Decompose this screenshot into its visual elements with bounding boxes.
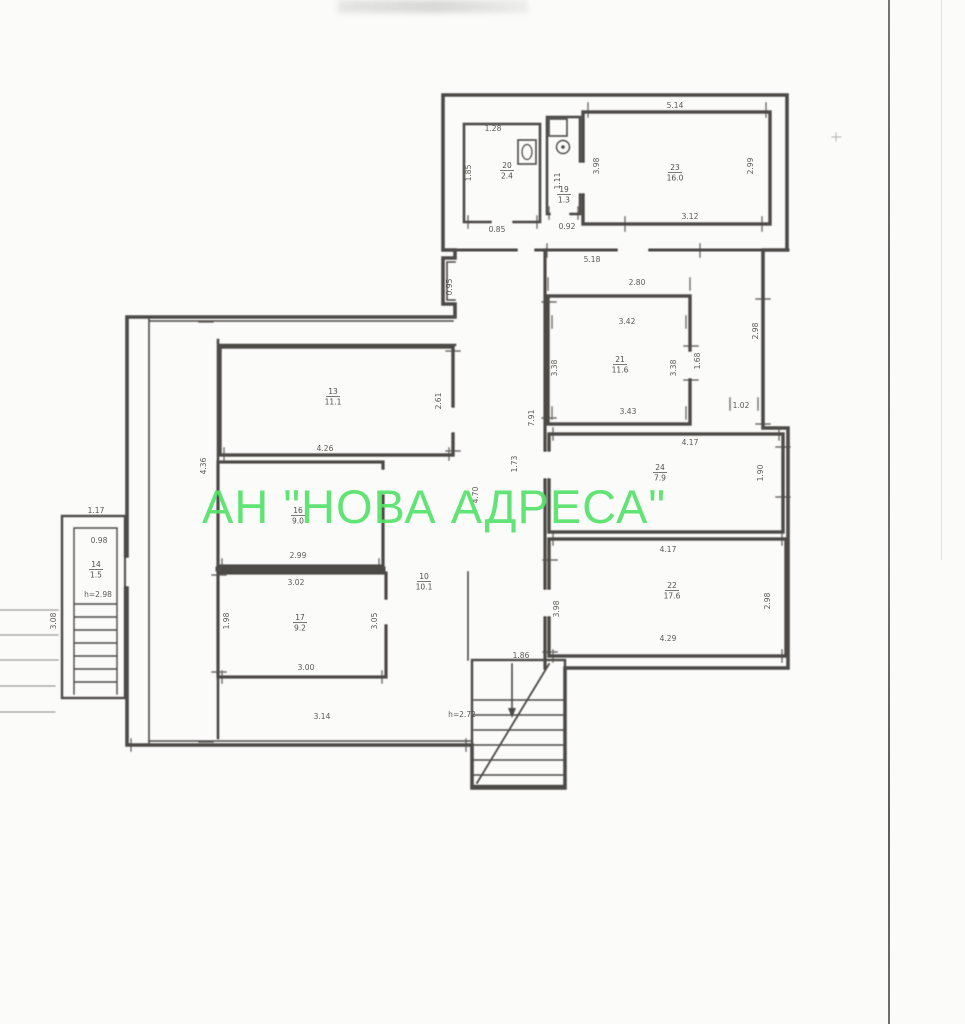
door-openings <box>121 163 696 624</box>
room-area-label: 1.5 <box>90 571 102 580</box>
dimension-label: 3.38 <box>550 359 559 376</box>
room-number-label: 22 <box>667 581 677 590</box>
dimension-ticks <box>131 103 790 751</box>
dimension-label: h=2.72 <box>448 710 476 719</box>
dimension-label: 4.29 <box>660 634 677 643</box>
dimension-label: 5.18 <box>584 255 601 264</box>
room-area-label: 10.1 <box>416 583 433 592</box>
scan-line-main <box>888 0 890 1024</box>
dimension-label: 3.05 <box>370 612 379 629</box>
room-number-label: 23 <box>670 163 680 172</box>
staircase-bottom <box>472 660 565 786</box>
scan-line-faint <box>941 0 942 560</box>
dimension-label: 3.14 <box>314 712 331 721</box>
dimension-label: 0.85 <box>489 225 506 234</box>
dimension-label: 1.86 <box>513 651 530 660</box>
dimension-label: 3.43 <box>620 407 637 416</box>
room-area-label: 9.2 <box>294 624 306 633</box>
dimension-label: 1.90 <box>756 464 765 481</box>
room-number-label: 24 <box>655 463 665 472</box>
dimension-label: 2.80 <box>629 278 646 287</box>
scan-mark <box>832 133 841 141</box>
room-area-label: 17.6 <box>664 592 681 601</box>
dimension-label: 3.08 <box>49 612 58 629</box>
room-area-label: 11.6 <box>612 366 629 375</box>
scan-smudge-top <box>338 0 528 13</box>
dimension-label: 3.02 <box>288 578 305 587</box>
dimension-label: h=2.98 <box>84 590 112 599</box>
dimension-label: 0.98 <box>91 536 108 545</box>
floor-plan-page: 1.281.850.850.921.115.143.982.993.125.18… <box>0 0 965 1024</box>
dimension-label: 1.73 <box>510 455 519 472</box>
dimension-label: 3.98 <box>592 157 601 174</box>
labels-group: 1.281.850.850.921.115.143.982.993.125.18… <box>49 101 772 721</box>
room-area-label: 2.4 <box>501 172 513 181</box>
room-number-label: 21 <box>615 355 625 364</box>
dimension-label: 2.98 <box>763 592 772 609</box>
dimension-label: 7.91 <box>527 409 536 426</box>
room-number-label: 19 <box>559 185 569 194</box>
staircase-left <box>0 516 125 712</box>
dimension-label: 0.92 <box>559 222 576 231</box>
watermark: АН "НОВА АДРЕСА" <box>202 479 666 534</box>
room-number-label: 13 <box>328 387 338 396</box>
toilet-icon <box>549 119 570 154</box>
dimension-label: 1.02 <box>733 401 750 410</box>
dimension-label: 0.95 <box>445 278 454 295</box>
dimension-label: 3.98 <box>552 600 561 617</box>
dimension-label: 1.85 <box>464 164 473 181</box>
room-area-label: 1.3 <box>558 196 570 205</box>
dimension-label: 1.17 <box>88 506 105 515</box>
dimension-label: 2.99 <box>290 551 307 560</box>
dimension-label: 2.98 <box>751 322 760 339</box>
dimension-label: 3.38 <box>669 359 678 376</box>
dimension-label: 1.28 <box>485 124 502 133</box>
room-number-label: 14 <box>91 560 101 569</box>
room-number-label: 20 <box>502 161 512 170</box>
dimension-label: 3.12 <box>682 212 699 221</box>
dimension-label: 3.00 <box>298 663 315 672</box>
dimension-label: 4.17 <box>682 438 699 447</box>
room-area-label: 11.1 <box>325 398 342 407</box>
dimension-label: 4.36 <box>199 457 208 474</box>
room-number-label: 10 <box>419 572 429 581</box>
dimension-label: 4.17 <box>660 545 677 554</box>
dimension-label: 1.68 <box>693 352 702 369</box>
dimension-label: 2.61 <box>434 392 443 409</box>
dimension-label: 3.42 <box>619 317 636 326</box>
room-area-label: 16.0 <box>667 174 684 183</box>
dimension-label: 4.26 <box>317 444 334 453</box>
dimension-label: 5.14 <box>667 101 684 110</box>
room-number-label: 17 <box>295 613 305 622</box>
dimension-label: 1.98 <box>222 612 231 629</box>
walls-group <box>0 95 841 788</box>
dimension-label: 2.99 <box>746 157 755 174</box>
sink-icon <box>518 140 536 164</box>
